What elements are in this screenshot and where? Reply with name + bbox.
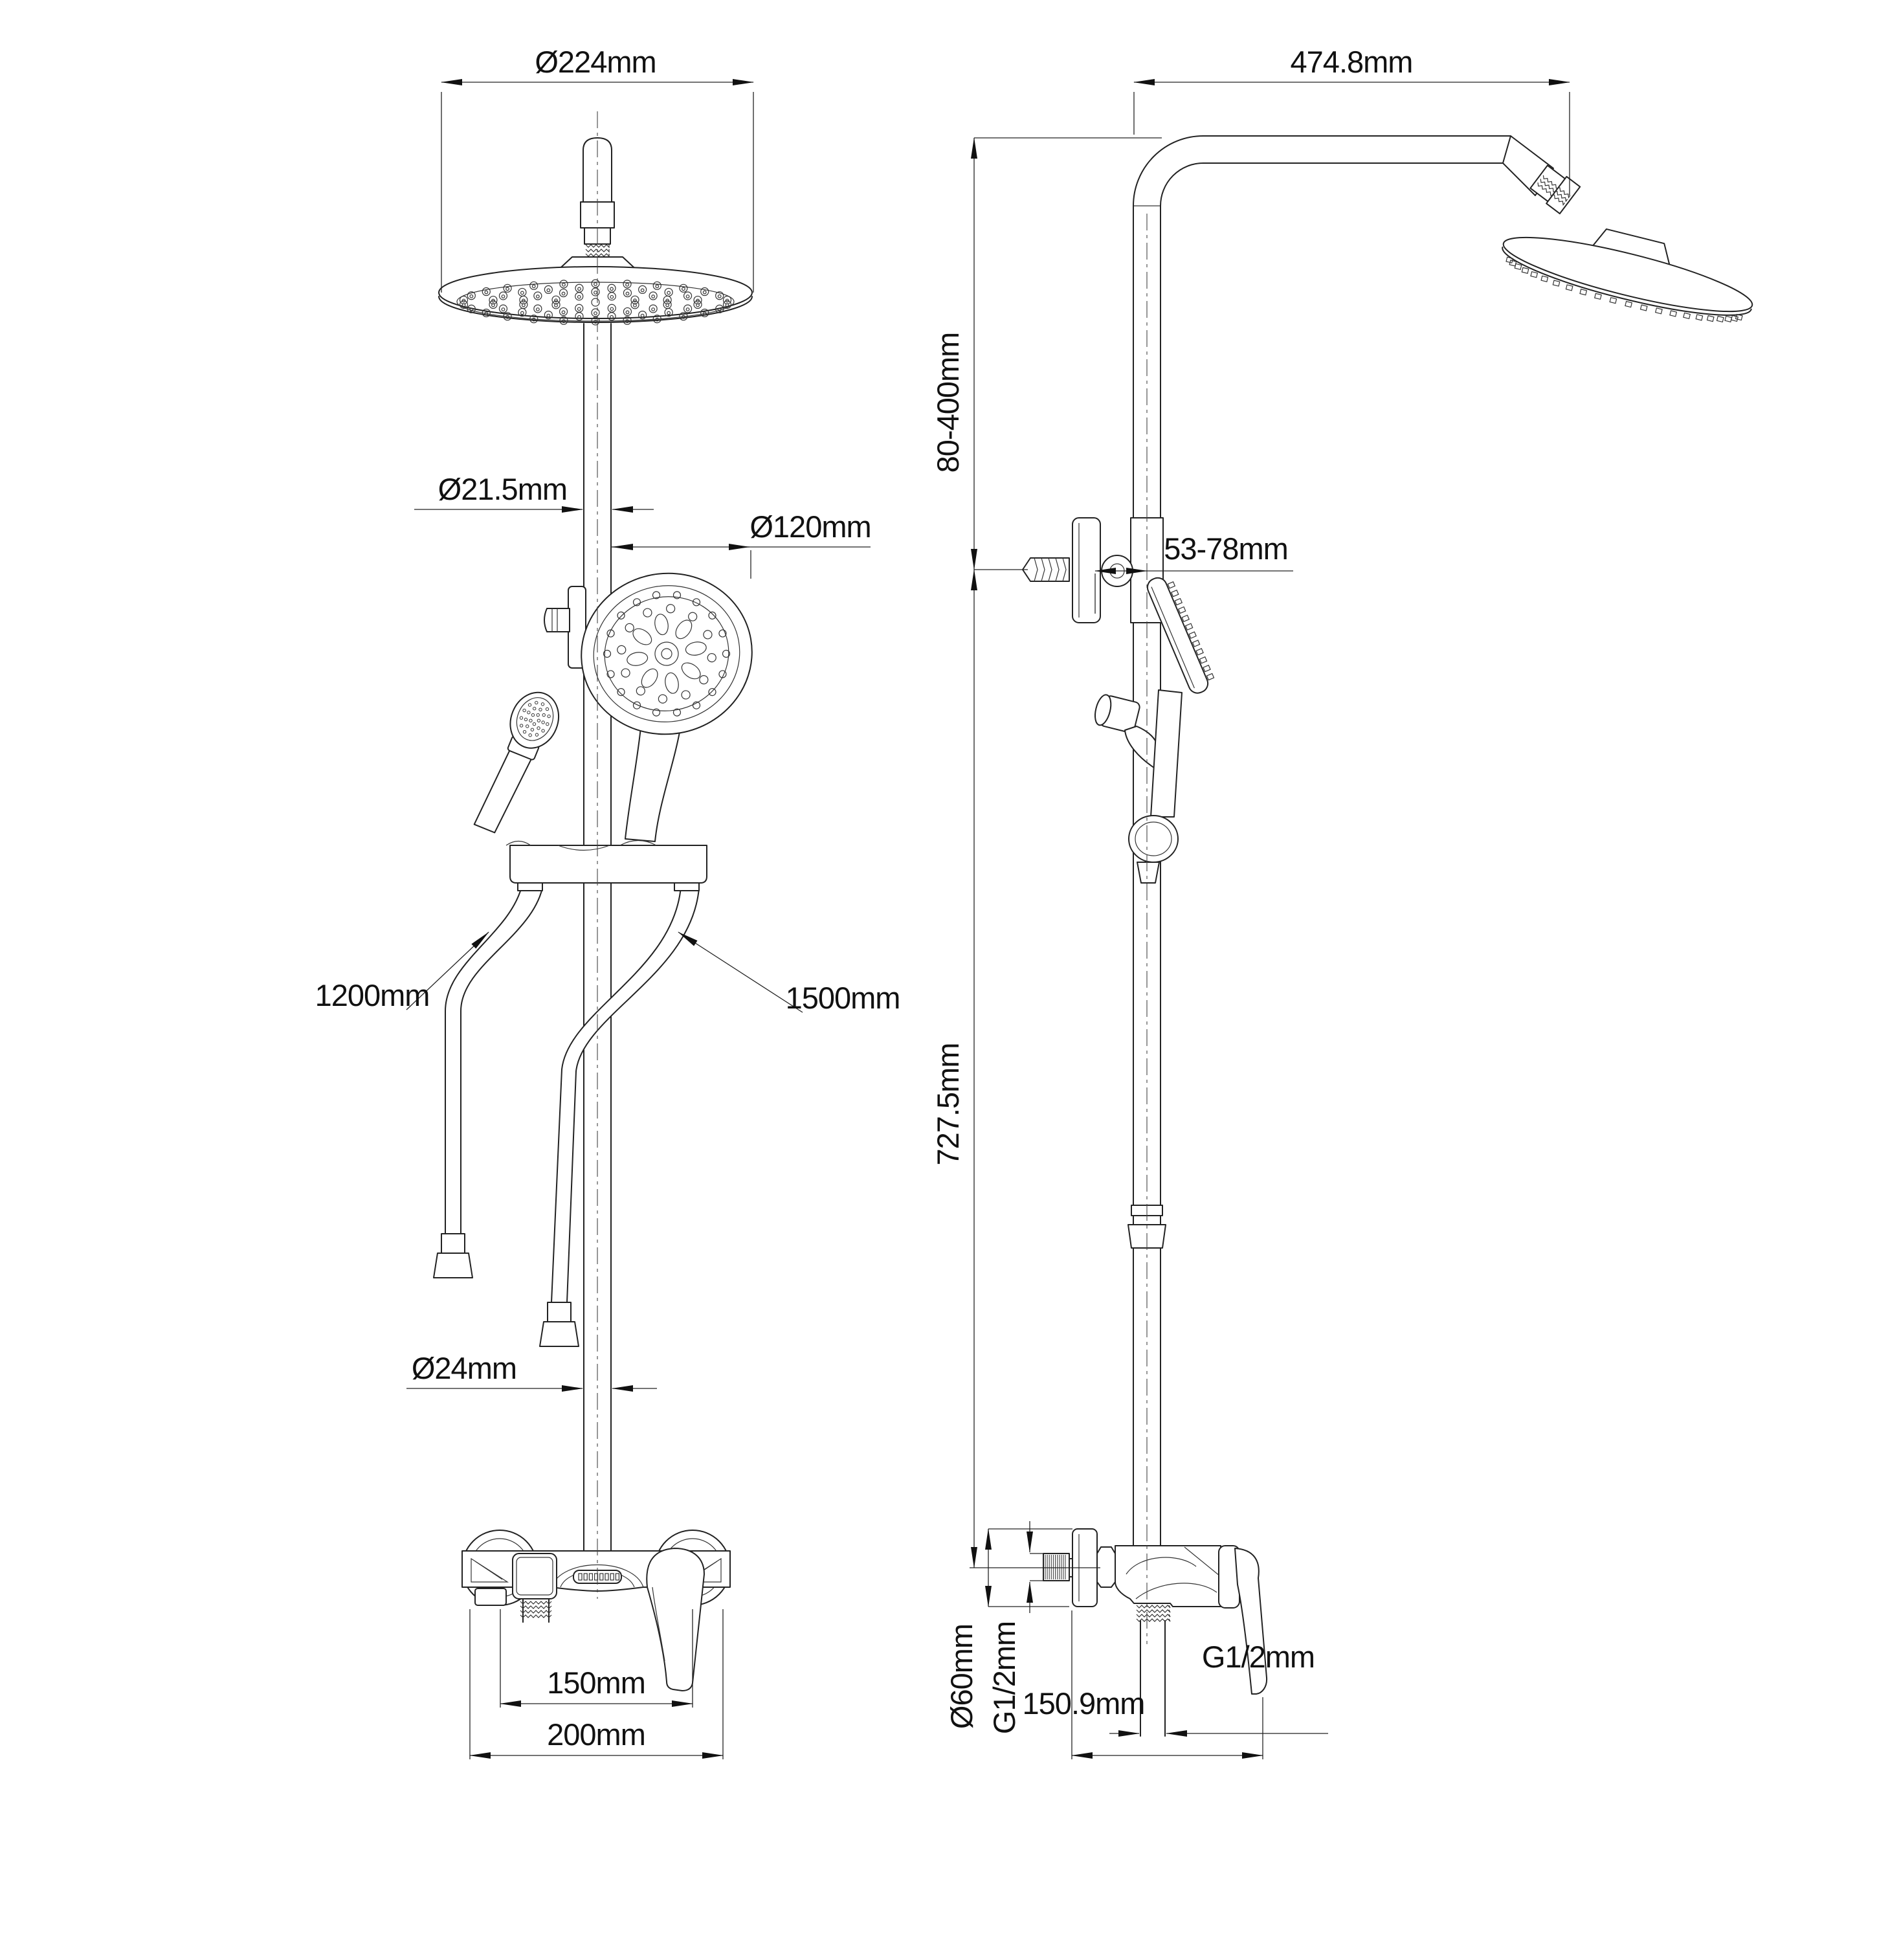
- label-hand-shower-diameter: Ø120mm: [750, 509, 871, 544]
- label-riser-length: 727.5mm: [931, 1043, 965, 1166]
- label-valve-depth: 150.9mm: [1023, 1686, 1145, 1721]
- dim-riser-diameter: Ø21.5mm: [414, 472, 654, 509]
- front-view: [434, 138, 765, 1691]
- dim-bracket-height-range: 80-400mm: [931, 138, 1162, 570]
- label-left-hose-length: 1200mm: [315, 978, 430, 1012]
- wall-anchor: [1023, 558, 1069, 581]
- shower-hose-left: [434, 887, 542, 1278]
- slider-bracket-front: [506, 841, 707, 891]
- hand-shower-front: [568, 560, 764, 841]
- dim-arm-reach: 474.8mm: [1134, 45, 1570, 195]
- side-wall-bracket: [1023, 518, 1163, 623]
- label-wall-clearance: 53-78mm: [1164, 531, 1288, 566]
- label-rain-head-diameter: Ø224mm: [535, 45, 656, 79]
- side-outlet-threads: [1137, 1605, 1170, 1621]
- dim-valve-depth: 150.9mm: [1023, 1610, 1263, 1759]
- label-arm-reach: 474.8mm: [1291, 45, 1413, 79]
- label-riser-diameter: Ø21.5mm: [438, 472, 567, 506]
- rain-shower-head-side: [1496, 206, 1761, 336]
- side-view: [1023, 136, 1762, 1736]
- drawing-page: Ø224mm Ø21.5mm Ø120mm 1200mm 1500mm: [0, 0, 1877, 1960]
- label-flange-diameter: Ø60mm: [944, 1624, 979, 1729]
- bidet-sprayer-front: [468, 685, 566, 839]
- slider-knob-front: [544, 586, 586, 668]
- dim-right-hose-length: 1500mm: [678, 932, 900, 1015]
- dim-riser-length: 727.5mm: [931, 570, 1100, 1568]
- side-shower-arm: [1133, 136, 1580, 214]
- mixer-handle-front: [647, 1548, 704, 1691]
- technical-drawing: Ø224mm Ø21.5mm Ø120mm 1200mm 1500mm: [0, 0, 1877, 1960]
- dim-lower-pipe-diameter: Ø24mm: [406, 1351, 657, 1388]
- label-bracket-height-range: 80-400mm: [931, 333, 965, 473]
- label-right-hose-length: 1500mm: [786, 981, 900, 1015]
- label-valve-center-distance: 150mm: [547, 1665, 645, 1700]
- label-lower-pipe-diameter: Ø24mm: [412, 1351, 516, 1385]
- front-nipple-threads: [520, 1601, 551, 1618]
- shower-hose-right: [540, 887, 699, 1346]
- label-outlet-thread: G1/2mm: [1202, 1640, 1315, 1674]
- rain-shower-head-front: [439, 267, 752, 325]
- dim-hand-shower-diameter: Ø120mm: [611, 509, 871, 579]
- label-inlet-thread: G1/2mm: [987, 1621, 1021, 1734]
- holder-cradle-side: [1129, 816, 1178, 862]
- label-valve-overall-width: 200mm: [547, 1717, 645, 1752]
